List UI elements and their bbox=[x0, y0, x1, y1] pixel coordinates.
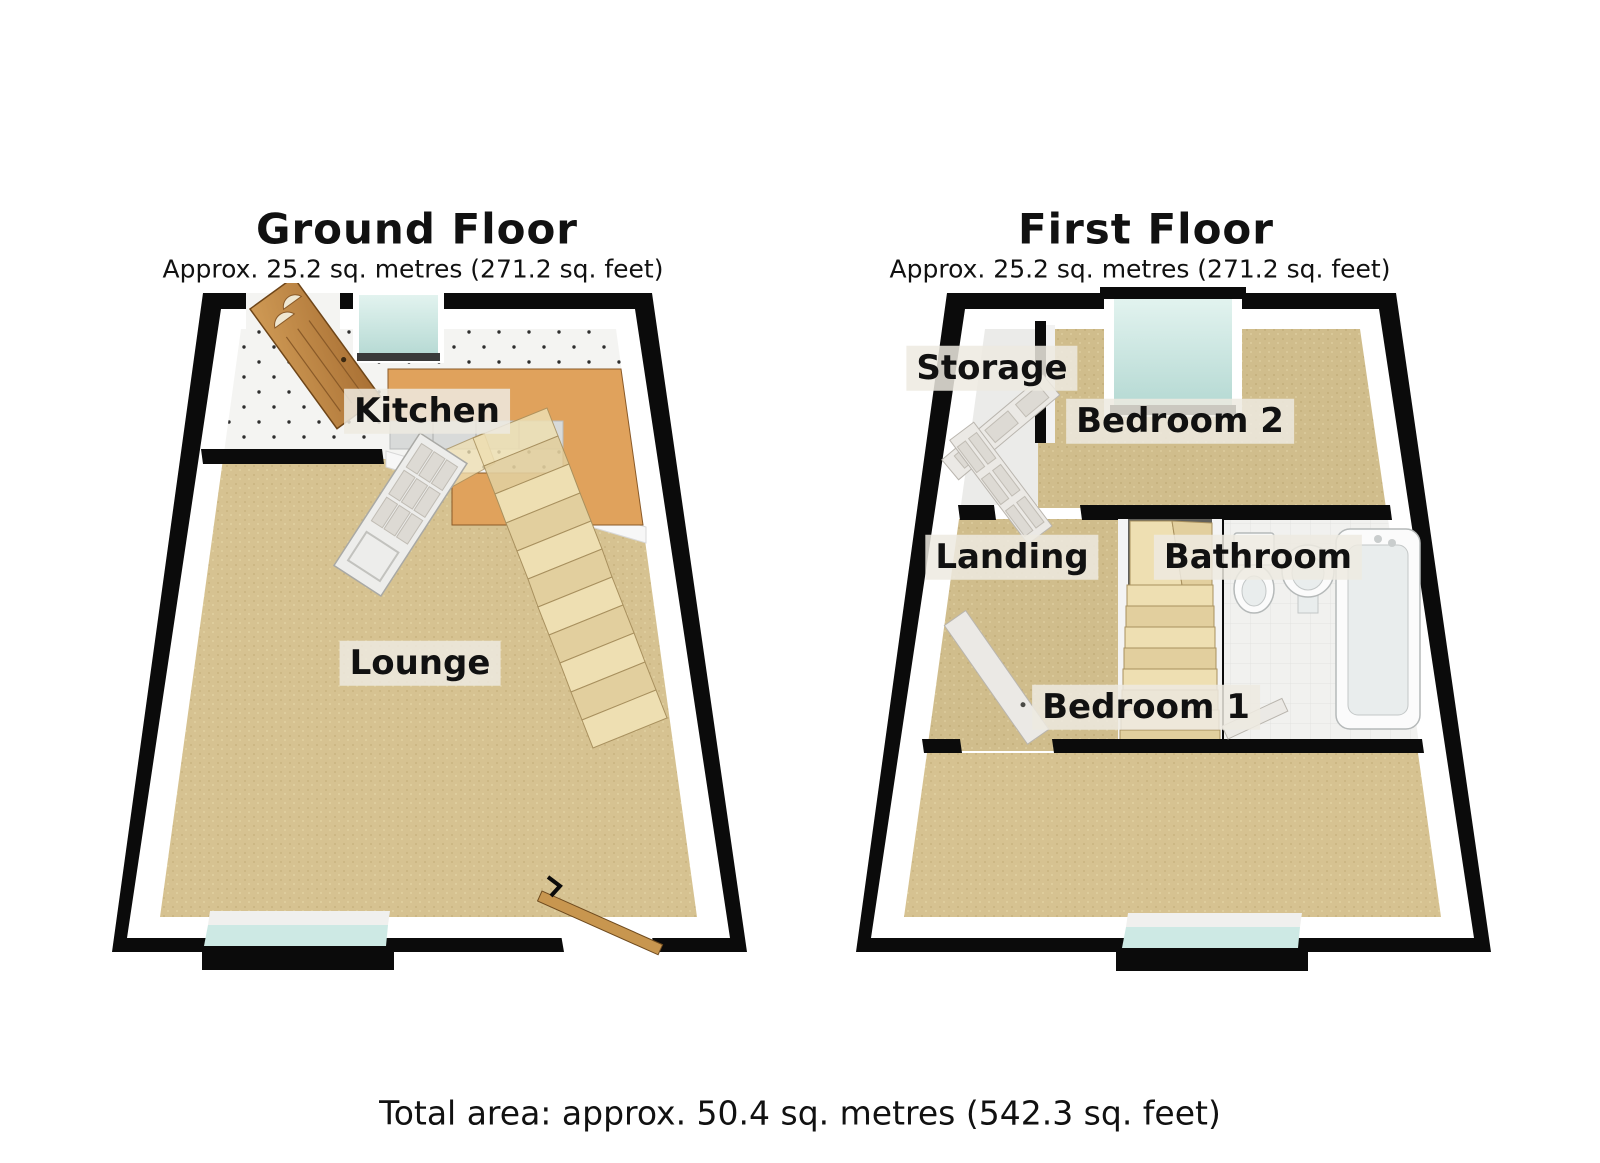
room-label-bedroom1: Bedroom 1 bbox=[1032, 685, 1260, 730]
hall-lounge-divider bbox=[201, 449, 384, 464]
room-label-bedroom2: Bedroom 2 bbox=[1066, 399, 1294, 444]
bedroom1-floor bbox=[904, 753, 1441, 917]
bedroom1-window bbox=[1116, 913, 1308, 971]
room-label-bathroom: Bathroom bbox=[1154, 535, 1362, 580]
total-area-text: Total area: approx. 50.4 sq. metres (542… bbox=[379, 1094, 1221, 1133]
room-label-lounge: Lounge bbox=[340, 641, 501, 686]
ground-floor-subtitle: Approx. 25.2 sq. metres (271.2 sq. feet) bbox=[163, 255, 664, 284]
first-floor-title: First Floor bbox=[1018, 205, 1274, 254]
room-label-kitchen: Kitchen bbox=[344, 389, 510, 434]
bedroom2-window bbox=[1100, 287, 1246, 417]
first-floor-subtitle: Approx. 25.2 sq. metres (271.2 sq. feet) bbox=[890, 255, 1391, 284]
lounge-window bbox=[202, 911, 394, 970]
ground-floor-title: Ground Floor bbox=[256, 205, 578, 254]
floorplan-page: { "ground_floor": { "title": "Ground Flo… bbox=[0, 0, 1600, 1163]
room-label-storage: Storage bbox=[906, 346, 1077, 391]
room-label-landing: Landing bbox=[925, 535, 1098, 580]
ground-front-window bbox=[353, 291, 444, 363]
